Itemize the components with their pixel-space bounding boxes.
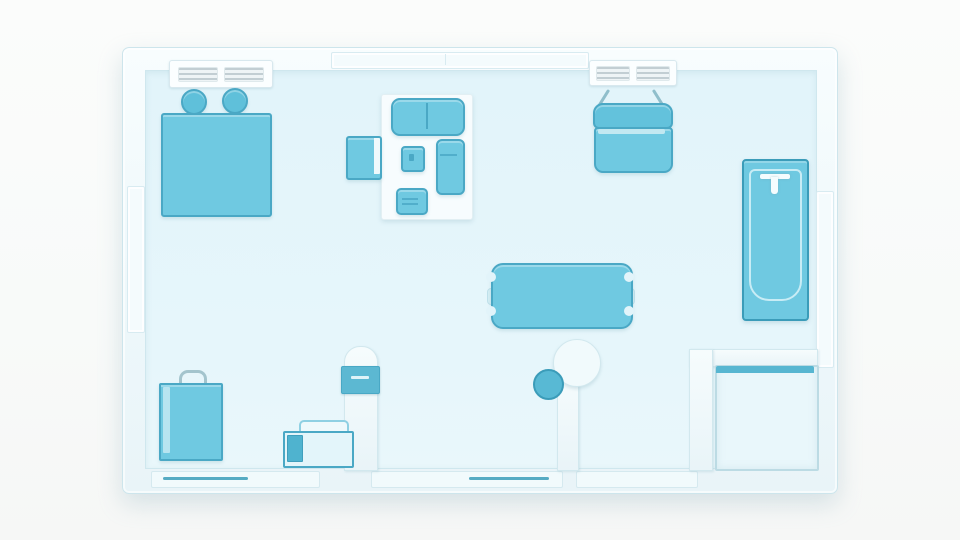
loveseat-cushion-divider xyxy=(426,103,428,129)
appliance-panel xyxy=(287,435,303,462)
left-window xyxy=(127,186,145,333)
bed xyxy=(161,113,272,217)
washer-cabinet xyxy=(715,365,819,471)
vent-grille-icon xyxy=(636,66,670,81)
hanging-chair-back xyxy=(593,103,673,129)
table-notch xyxy=(624,272,634,282)
pillow-right xyxy=(222,88,248,114)
right-window xyxy=(816,191,834,368)
table-notch xyxy=(624,306,634,316)
top-window xyxy=(331,52,589,69)
round-stool xyxy=(533,369,564,400)
table-notch xyxy=(486,272,496,282)
top-window-mullion xyxy=(445,54,446,65)
scene xyxy=(0,0,960,540)
bathtub xyxy=(742,159,809,321)
hanging-chair-seat-edge xyxy=(598,129,665,134)
chaise-headrest-line xyxy=(440,154,457,156)
hanging-chair-seat xyxy=(594,127,673,173)
panel-label-mark xyxy=(351,376,369,379)
vent-grille-icon xyxy=(224,67,264,82)
coffee-table-detail xyxy=(409,154,414,161)
ottoman-line xyxy=(402,198,418,200)
loveseat xyxy=(391,98,465,136)
floor-plan xyxy=(122,47,838,494)
dining-table xyxy=(491,263,633,329)
small-appliance xyxy=(283,431,354,468)
pillow-left xyxy=(181,89,207,115)
faucet-stem-icon xyxy=(771,177,778,194)
armchair xyxy=(346,136,382,180)
table-notch xyxy=(486,306,496,316)
shopping-bag xyxy=(159,383,223,461)
air-vent-left xyxy=(169,60,273,88)
ottoman-line xyxy=(402,203,418,205)
ottoman xyxy=(396,188,428,215)
coffee-table xyxy=(401,146,425,172)
corner-room-wall-side xyxy=(689,349,713,471)
vent-grille-icon xyxy=(178,67,218,82)
bottom-sill-center-glass xyxy=(469,477,549,480)
washer-cabinet-edge xyxy=(716,366,814,373)
armchair-seat-edge xyxy=(374,138,380,174)
bottom-sill-left-glass xyxy=(163,477,248,480)
air-vent-right xyxy=(589,60,677,86)
bottom-sill-right xyxy=(576,471,698,488)
chaise-lounge xyxy=(436,139,465,195)
vent-grille-icon xyxy=(596,66,630,81)
bag-fold-highlight xyxy=(163,387,170,453)
wall-control-panel xyxy=(341,366,380,394)
